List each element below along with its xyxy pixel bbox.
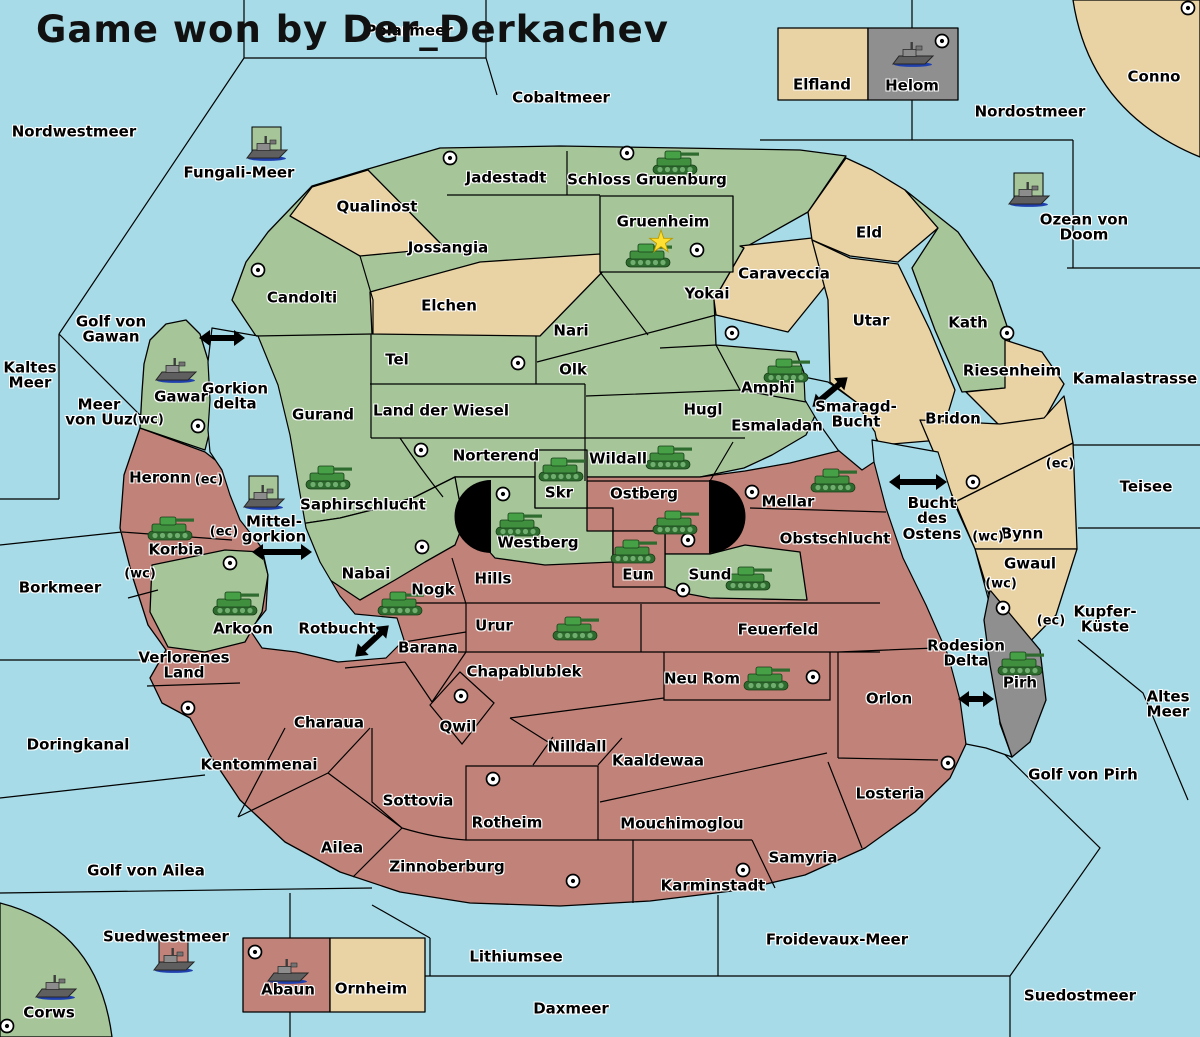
- game-map: NordwestmeerPolarmeerCobaltmeerFungali-M…: [0, 0, 1200, 1037]
- supply-center-dot: [936, 35, 949, 48]
- supply-center-dot: [1182, 2, 1195, 15]
- supply-center-dot: [497, 488, 510, 501]
- page-title: Game won by Der_Derkachev: [36, 8, 669, 51]
- supply-center-dot: [737, 864, 750, 877]
- supply-center-dot: [621, 147, 634, 160]
- supply-center-dot: [416, 541, 429, 554]
- fleet-unit[interactable]: [244, 476, 284, 510]
- island-ornheim[interactable]: [330, 938, 425, 1012]
- supply-center-dot: [1, 1020, 14, 1033]
- supply-center-dot: [682, 534, 695, 547]
- supply-center-dot: [252, 264, 265, 277]
- supply-center-dot: [192, 420, 205, 433]
- fleet-unit[interactable]: [247, 127, 287, 161]
- supply-center-dot: [512, 357, 525, 370]
- supply-center-dot: [677, 584, 690, 597]
- supply-center-dot: [249, 946, 262, 959]
- supply-center-dot: [807, 671, 820, 684]
- supply-center-dot: [567, 875, 580, 888]
- fleet-unit[interactable]: [154, 939, 194, 973]
- supply-center-dot: [942, 757, 955, 770]
- supply-center-dot: [224, 557, 237, 570]
- supply-center-dot: [444, 152, 457, 165]
- supply-center-dot: [691, 244, 704, 257]
- supply-center-dot: [1001, 327, 1014, 340]
- supply-center-dot: [182, 702, 195, 715]
- supply-center-dot: [487, 773, 500, 786]
- supply-center-dot: [415, 444, 428, 457]
- fleet-unit[interactable]: [1009, 173, 1049, 207]
- supply-center-dot: [726, 327, 739, 340]
- island-elfland[interactable]: [778, 28, 868, 100]
- supply-center-dot: [967, 476, 980, 489]
- supply-center-dot: [455, 690, 468, 703]
- supply-center-dot: [746, 486, 759, 499]
- supply-center-dot: [997, 602, 1010, 615]
